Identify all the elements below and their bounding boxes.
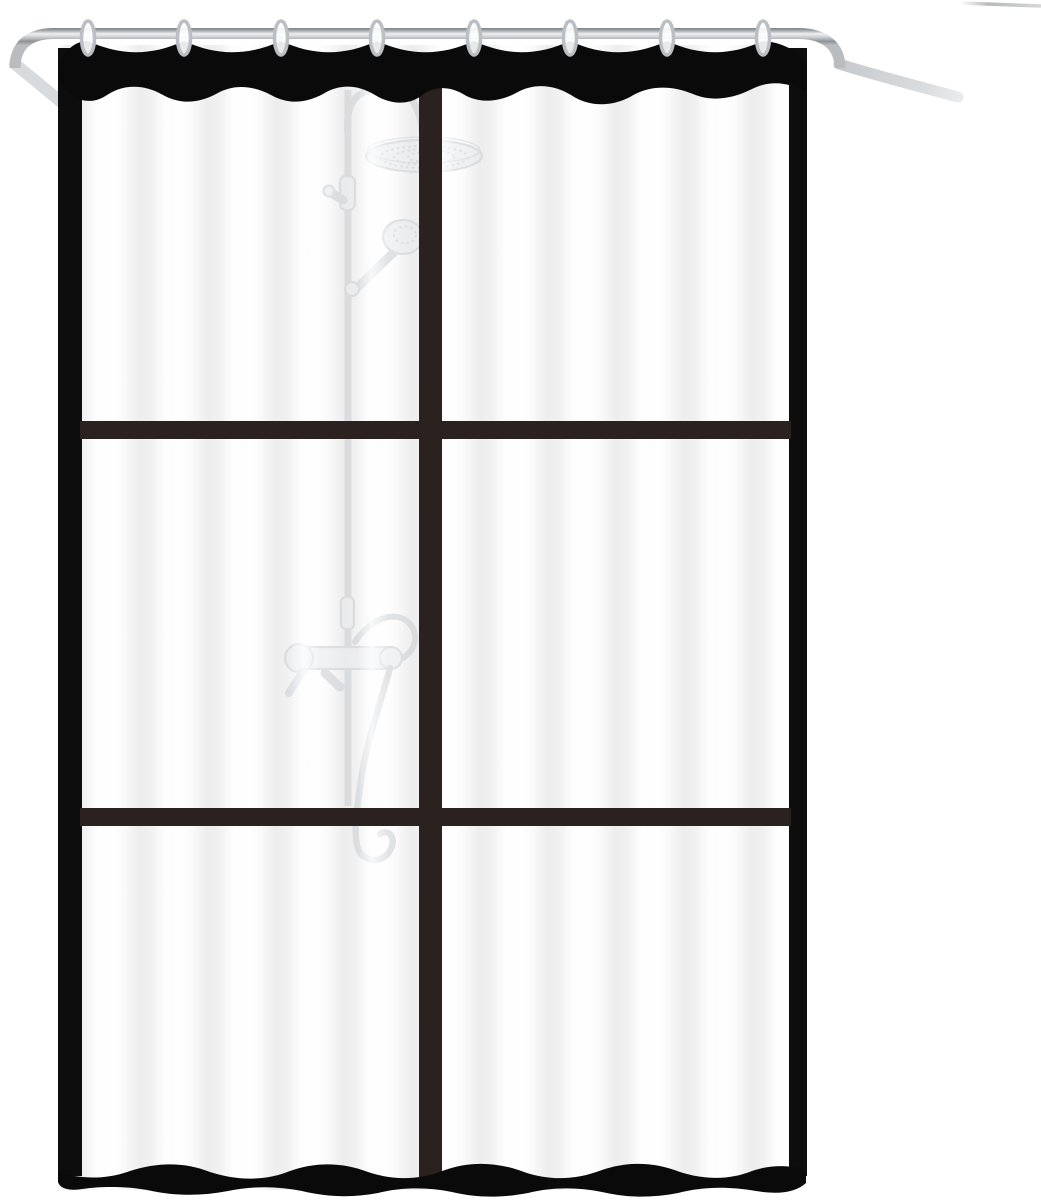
curtain-hook [564, 21, 577, 55]
grid-left-border [58, 48, 82, 1176]
curtain-hook [661, 21, 674, 55]
rod-right-return [839, 64, 958, 97]
curtain-hook [468, 21, 481, 55]
curtain-hook [178, 21, 191, 55]
grid-right-border [789, 48, 807, 1176]
grid-horizontal-bar-2 [80, 808, 791, 826]
shower-curtain-illustration [0, 0, 1041, 1200]
curtain-hook [82, 21, 95, 55]
grid-horizontal-bar-1 [80, 421, 791, 439]
curtain-hook [275, 21, 288, 55]
wall-streak [960, 3, 1041, 6]
grid-center-vertical-bar [419, 70, 442, 1180]
curtain-hook [757, 21, 770, 55]
shower-curtain-product-photo [0, 0, 1041, 1200]
curtain-hook [371, 21, 384, 55]
curtain-panel [58, 41, 807, 1197]
